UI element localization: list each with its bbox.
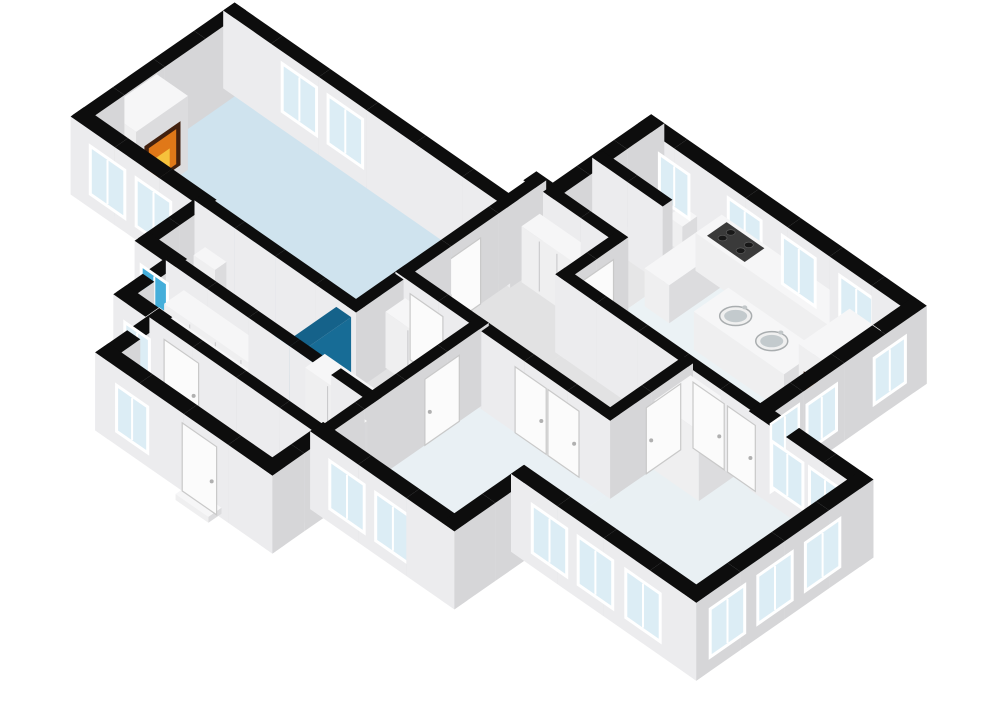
lounge-door-1-handle	[717, 434, 721, 438]
island-sink-2-faucet	[778, 330, 783, 334]
island-sink-1-bowl	[724, 310, 747, 322]
bedroom-door-handle	[428, 410, 432, 414]
bedroom-closet-door-2-handle	[572, 442, 576, 446]
corridor-entry-door-handle	[192, 394, 196, 398]
cooktop-burner-1	[744, 242, 753, 248]
inner-hall-door-handle	[649, 438, 653, 442]
island-sink-1-faucet	[742, 305, 747, 309]
lounge-door-2-handle	[748, 456, 752, 460]
hall-lounge-wall-face-1	[600, 414, 610, 499]
island-sink-2-bowl	[760, 335, 783, 347]
lounge-east-wall-face-3	[683, 594, 696, 681]
front-door-handle	[210, 479, 214, 483]
bedroom-closet-door-1-handle	[539, 419, 543, 423]
cooktop-burner-2	[718, 235, 727, 241]
cooktop-burner-0	[726, 230, 735, 236]
floorplan-3d-view	[0, 0, 1000, 707]
floorplan-canvas	[0, 0, 1000, 707]
cooktop-burner-3	[736, 248, 745, 254]
bedroom-east-wall-face-1	[441, 522, 454, 609]
entry-east-wall-face-1	[259, 466, 272, 553]
